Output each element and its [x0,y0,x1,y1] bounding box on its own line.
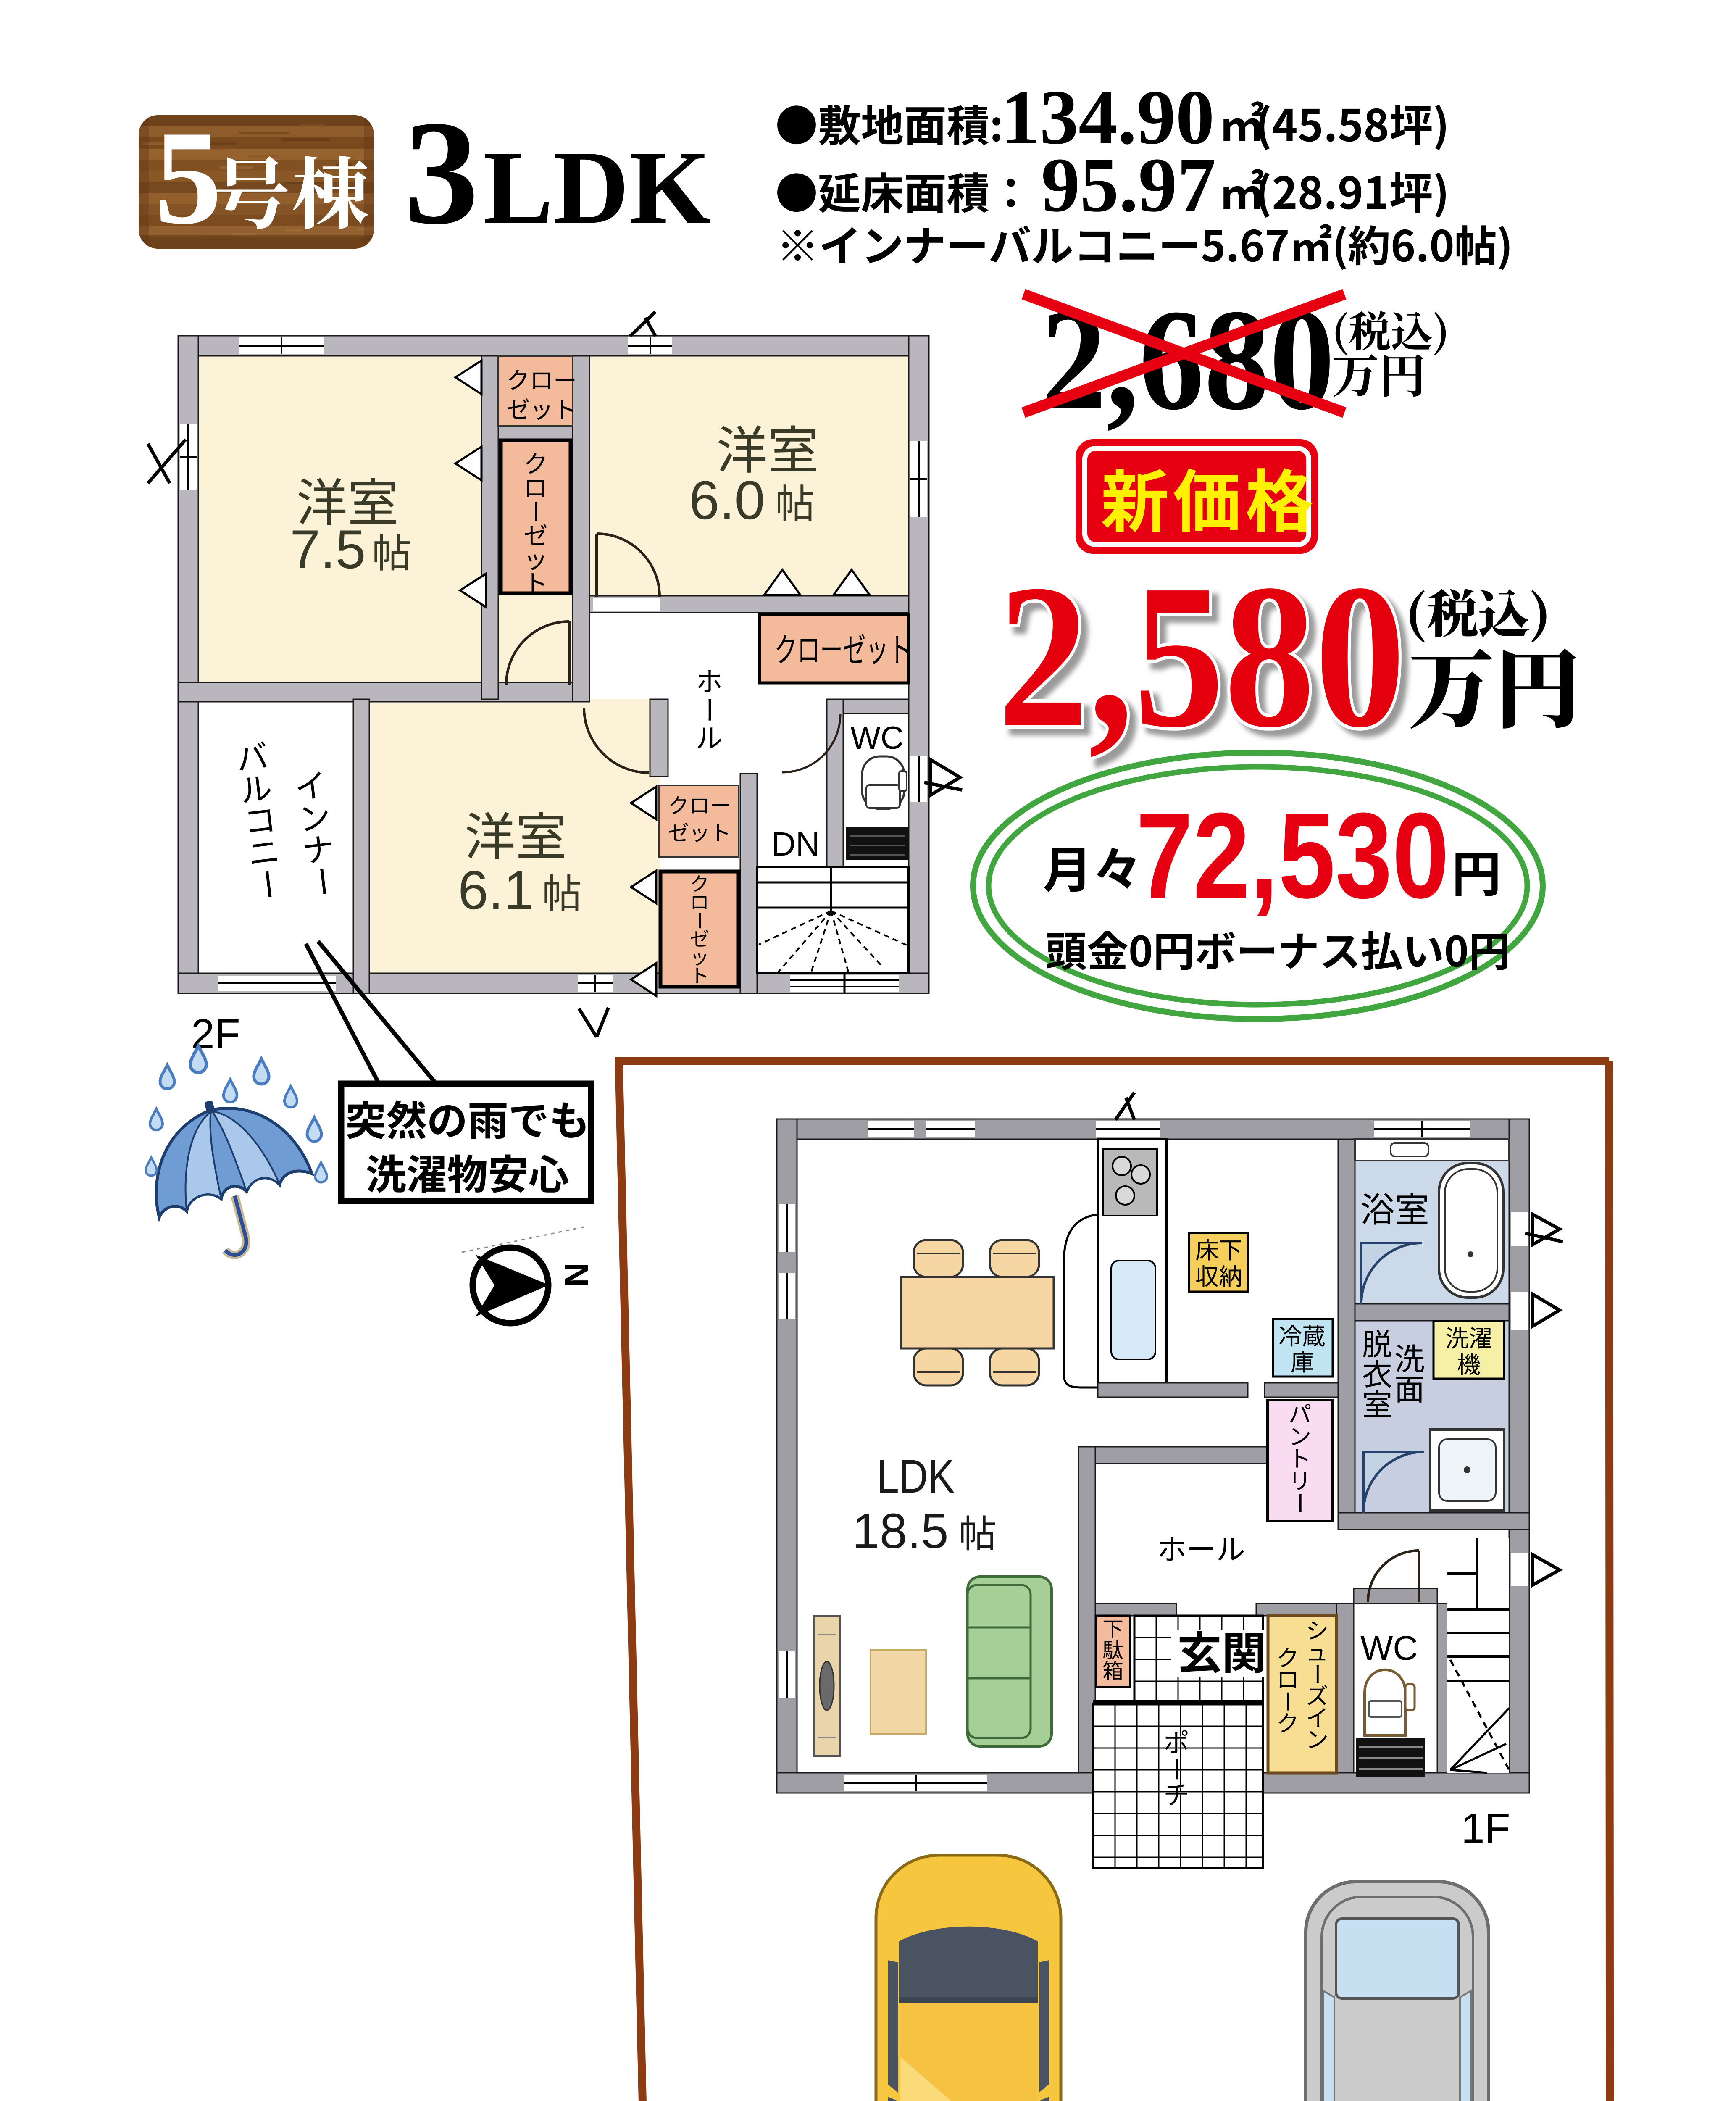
svg-text:1F: 1F [1461,1805,1510,1852]
svg-text:6.1: 6.1 [458,859,534,921]
svg-text:72,530: 72,530 [1136,787,1449,924]
svg-text:WC: WC [1360,1629,1418,1667]
svg-text:LDK: LDK [483,129,711,246]
svg-text:5: 5 [155,103,222,252]
svg-text:N: N [558,1263,595,1287]
svg-text:WC: WC [850,720,904,756]
svg-text:LDK: LDK [877,1451,955,1503]
svg-text:18.5: 18.5 [852,1503,949,1559]
svg-text:2,580: 2,580 [998,542,1405,770]
svg-text:DN: DN [771,825,820,863]
svg-text:3: 3 [404,90,479,255]
svg-text:7.5: 7.5 [290,519,366,580]
svg-text:95.97: 95.97 [1041,142,1216,228]
svg-text:6.0: 6.0 [689,469,765,531]
